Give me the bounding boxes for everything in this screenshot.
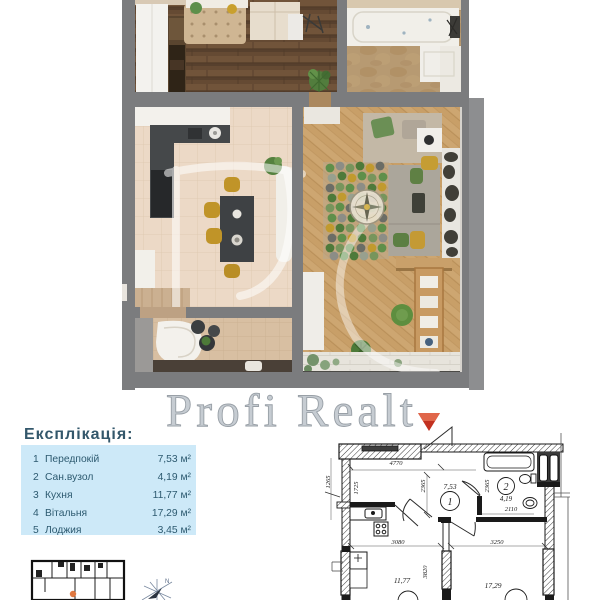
svg-text:3,45 м²: 3,45 м² <box>158 525 192 536</box>
svg-text:4770: 4770 <box>390 460 404 467</box>
svg-text:2110: 2110 <box>505 506 518 513</box>
svg-text:7,53: 7,53 <box>443 482 456 491</box>
svg-text:17,29: 17,29 <box>485 581 502 590</box>
svg-text:2: 2 <box>504 482 509 493</box>
svg-text:Передпокій: Передпокій <box>45 454 99 465</box>
svg-text:11,77: 11,77 <box>394 576 411 585</box>
svg-text:N: N <box>165 579 169 585</box>
svg-text:3820: 3820 <box>422 565 429 580</box>
svg-text:1265: 1265 <box>325 475 332 489</box>
svg-text:Сан.вузол: Сан.вузол <box>45 472 93 483</box>
svg-text:Експлікація:: Експлікація: <box>24 426 134 443</box>
svg-text:Кухня: Кухня <box>45 490 73 501</box>
svg-text:3: 3 <box>33 490 39 501</box>
svg-text:Вітальня: Вітальня <box>45 508 87 519</box>
svg-text:7,53 м²: 7,53 м² <box>158 454 192 465</box>
svg-text:Profi Realt: Profi Realt <box>166 385 417 437</box>
svg-text:4: 4 <box>33 508 39 519</box>
svg-text:3080: 3080 <box>391 539 406 546</box>
svg-text:1: 1 <box>448 497 453 508</box>
svg-text:2365: 2365 <box>420 479 427 493</box>
svg-text:2365: 2365 <box>484 479 491 493</box>
svg-text:4,19: 4,19 <box>500 495 513 503</box>
svg-text:1725: 1725 <box>353 481 360 495</box>
svg-text:17,29 м²: 17,29 м² <box>152 508 192 519</box>
svg-text:1: 1 <box>33 454 39 465</box>
svg-text:5: 5 <box>33 525 39 536</box>
svg-text:3250: 3250 <box>490 539 505 546</box>
svg-text:Лоджия: Лоджия <box>45 525 81 536</box>
svg-text:4,19 м²: 4,19 м² <box>158 472 192 483</box>
svg-text:11,77 м²: 11,77 м² <box>153 490 192 501</box>
svg-text:2: 2 <box>33 472 39 483</box>
